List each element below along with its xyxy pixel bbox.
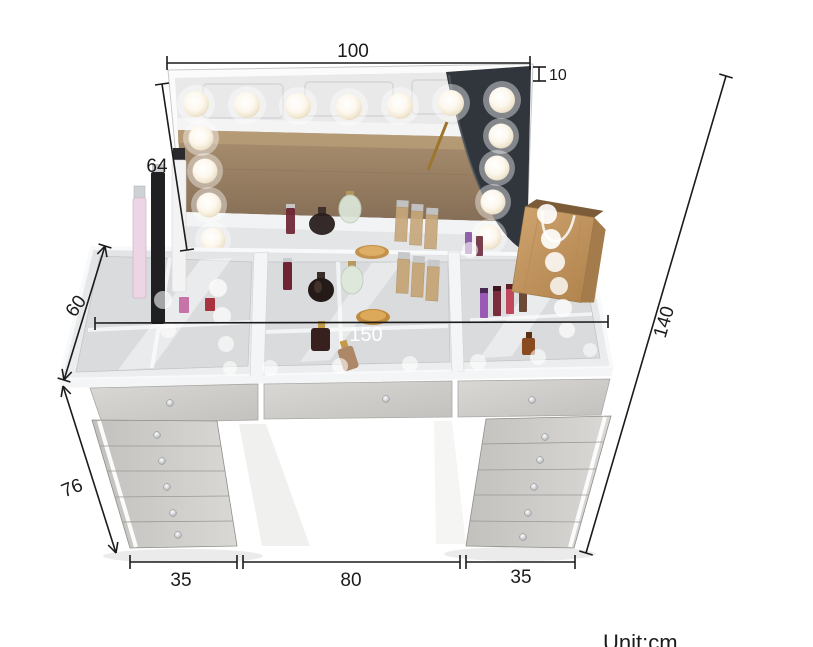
drawer-knob xyxy=(167,400,174,407)
tube-black-cap xyxy=(173,148,185,161)
kneehole-shadow-left xyxy=(239,424,310,546)
lipstick-reflection xyxy=(286,208,295,234)
vanity-base xyxy=(90,379,611,563)
dim-mirror-frame: 10 xyxy=(533,67,567,84)
light-bulb xyxy=(285,93,311,119)
drawer-knob xyxy=(520,534,527,541)
drawer-knob xyxy=(164,484,171,491)
drawer-knob xyxy=(159,458,166,465)
left-pedestal xyxy=(92,420,237,548)
drawer-knob xyxy=(542,434,549,441)
light-bulb xyxy=(489,87,515,113)
drawer-knob xyxy=(383,396,390,403)
light-bulb xyxy=(336,94,362,120)
drawer-knob xyxy=(537,457,544,464)
light-bulb xyxy=(197,193,222,218)
dim-label-mirror-height: 64 xyxy=(146,156,168,177)
light-bulb xyxy=(489,124,514,149)
lipstick xyxy=(283,262,292,290)
dim-label-table-width: 150 xyxy=(349,324,382,346)
drawer-knob xyxy=(531,484,538,491)
perfume-green-reflection xyxy=(339,195,361,223)
unit-label: Unit:cm xyxy=(603,630,678,647)
top-drawer-center xyxy=(264,381,452,419)
dim-label-overall-height: 140 xyxy=(650,304,679,340)
perfume-round-green xyxy=(341,266,363,294)
dim-label-right-pedestal-width: 35 xyxy=(510,567,531,588)
lipstick-small xyxy=(205,298,215,311)
light-bulb xyxy=(193,159,218,184)
drawer-knob xyxy=(154,432,161,439)
dim-kneehole-width: 80 xyxy=(243,555,460,591)
vanity-diagram-canvas: 100 10 64 60 150 xyxy=(0,0,813,647)
drawer-knob xyxy=(175,532,182,539)
product-dimension-diagram: 100 10 64 60 150 xyxy=(0,0,813,647)
light-bulb xyxy=(481,190,506,215)
top-drawer-left xyxy=(90,384,258,423)
square-perfume-bottle xyxy=(311,328,330,351)
light-bulb xyxy=(183,91,209,117)
light-bulb xyxy=(485,156,510,181)
drawer-knob xyxy=(525,510,532,517)
light-bulb xyxy=(387,93,413,119)
dim-label-mirror-frame: 10 xyxy=(549,67,567,84)
light-bulb xyxy=(438,90,464,116)
kneehole-shadow-right xyxy=(434,421,466,544)
drawer-knob xyxy=(529,397,536,404)
dim-label-pedestal-height: 76 xyxy=(58,475,85,502)
light-bulb xyxy=(189,126,214,151)
dim-label-left-pedestal-width: 35 xyxy=(170,570,191,591)
floor-shadow xyxy=(103,549,263,563)
drawer-knob xyxy=(170,510,177,517)
spray-bottle-cap xyxy=(134,186,145,199)
lipstick-small xyxy=(179,297,189,313)
light-bulb xyxy=(234,92,260,118)
dim-label-mirror-width: 100 xyxy=(337,41,369,62)
pink-spray-bottle xyxy=(133,198,146,298)
dim-label-kneehole-width: 80 xyxy=(340,570,361,591)
perfume-dark-reflection xyxy=(309,213,335,235)
